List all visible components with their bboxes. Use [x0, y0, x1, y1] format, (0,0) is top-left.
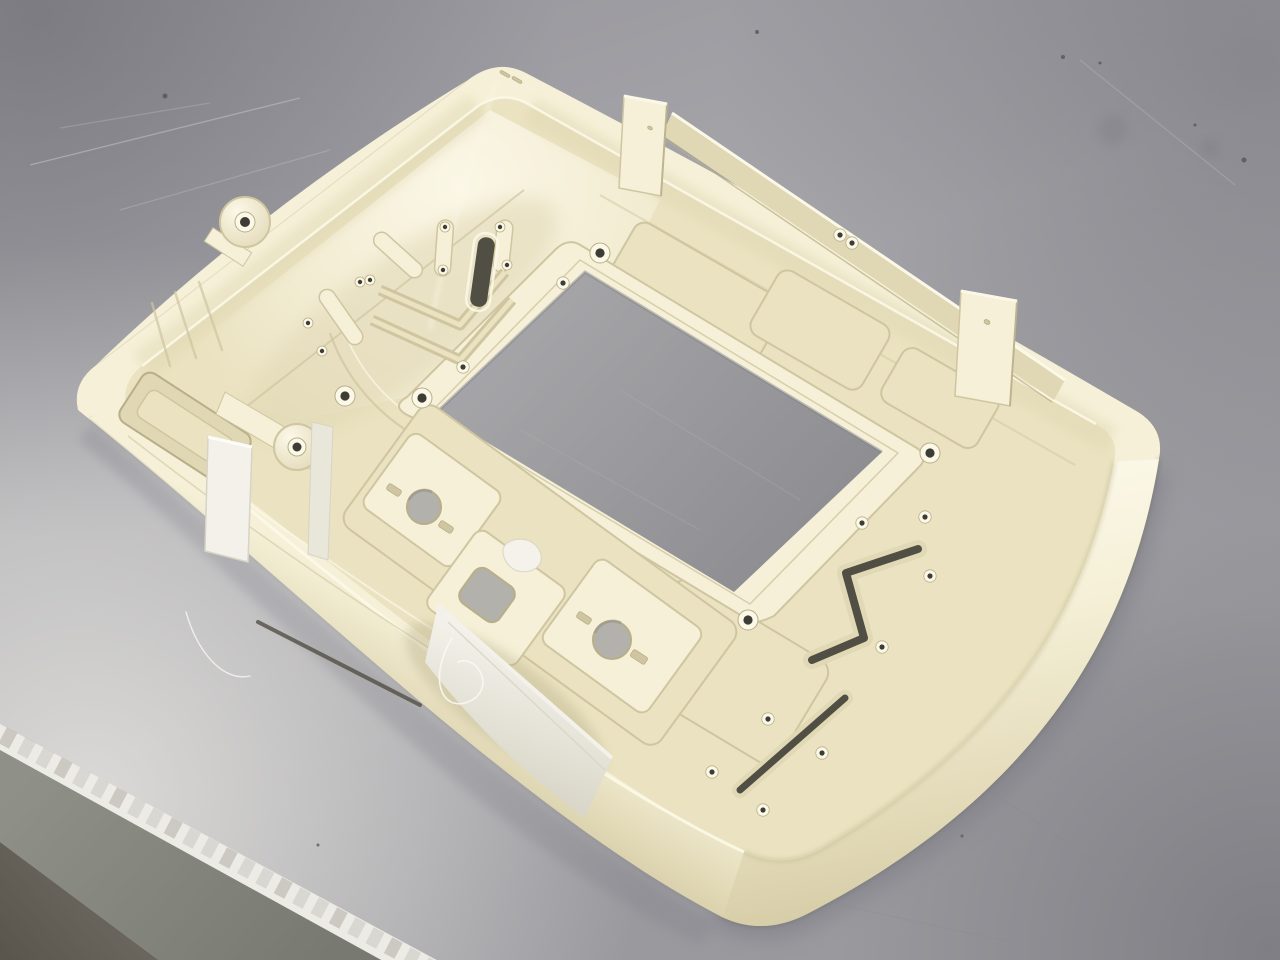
bead-hole [922, 514, 927, 519]
dust-speck [961, 835, 964, 838]
tab-face [955, 291, 1017, 406]
bead-hole [709, 769, 714, 774]
screw-hole [417, 393, 426, 402]
boss-hole [240, 217, 250, 227]
bead-hole [837, 232, 842, 237]
dust-speck [1061, 55, 1065, 59]
bead-hole [560, 280, 565, 285]
bead-hole [819, 750, 824, 755]
bead-hole [859, 520, 864, 525]
dust-speck [1194, 124, 1197, 127]
thin-fin [308, 422, 333, 560]
rim-tab-right [955, 291, 1017, 406]
screw-hole [340, 391, 349, 400]
dust-speck [1242, 158, 1247, 163]
link-hole [358, 280, 362, 284]
link-hole [441, 268, 445, 272]
bead-hole [879, 644, 884, 649]
screw-hole [925, 448, 934, 457]
smudge [1201, 139, 1219, 157]
bead-hole [849, 240, 854, 245]
white-clip [205, 437, 252, 562]
tab-face [619, 96, 667, 196]
link-hole [443, 225, 447, 229]
link-hole [320, 349, 324, 353]
dust-speck [163, 94, 168, 99]
link-hole [498, 225, 502, 229]
link-hole [505, 263, 509, 267]
photo-plastic-enclosure-on-table: gray table surface with dust specks and … [0, 0, 1280, 960]
bead-hole [765, 716, 770, 721]
dust-speck [1099, 62, 1102, 65]
boss-hole [293, 443, 302, 452]
screw-hole [595, 248, 604, 257]
screw-hole [743, 615, 752, 624]
bead-hole [927, 573, 932, 578]
photo-canvas: gray table surface with dust specks and … [0, 0, 1280, 960]
bead-hole [460, 364, 465, 369]
bead-hole [760, 807, 765, 812]
dust-speck [317, 844, 320, 847]
link-hole [306, 321, 310, 325]
dust-speck [755, 30, 759, 34]
rim-tab-top [619, 96, 667, 196]
link-hole [368, 278, 372, 282]
smudge [1098, 115, 1128, 145]
